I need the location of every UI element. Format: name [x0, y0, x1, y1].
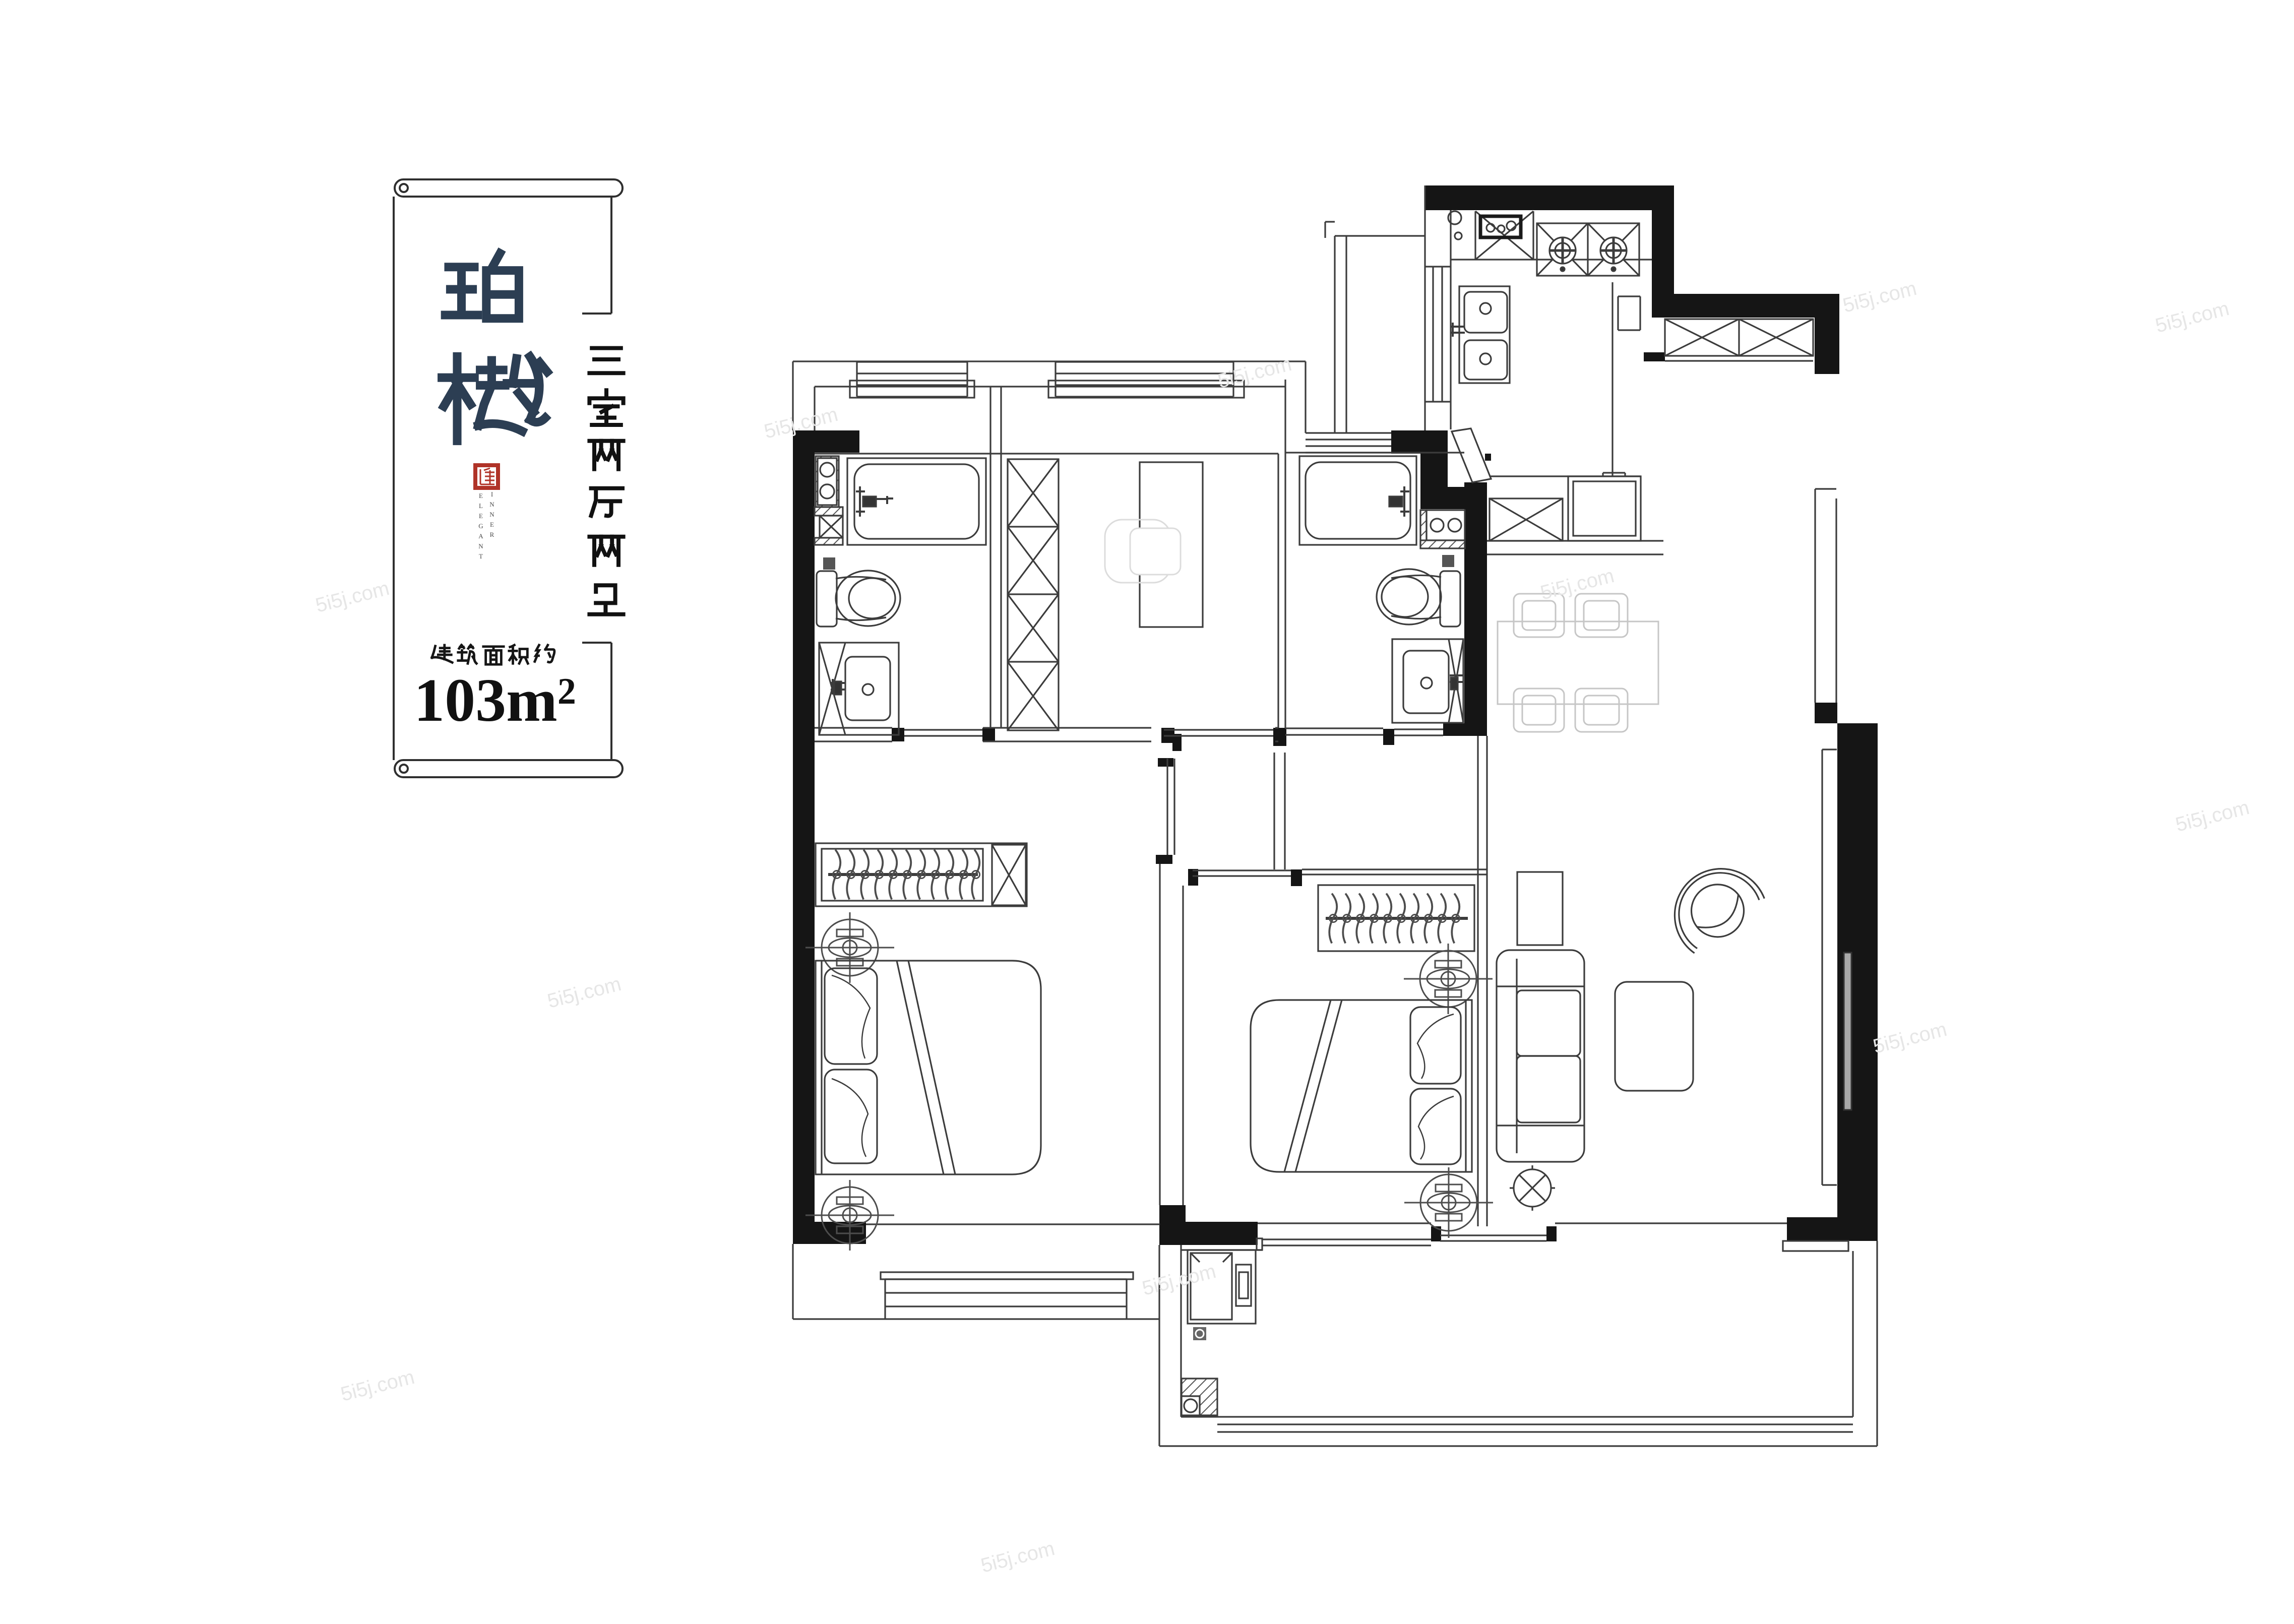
svg-text:G: G: [478, 522, 483, 530]
svg-text:E: E: [479, 492, 483, 499]
svg-text:103m2: 103m2: [414, 666, 576, 734]
svg-text:N: N: [478, 542, 483, 550]
svg-text:L: L: [479, 502, 483, 510]
svg-text:E: E: [479, 512, 483, 520]
svg-text:R: R: [490, 531, 494, 538]
svg-text:T: T: [479, 552, 483, 560]
svg-text:I: I: [491, 490, 493, 498]
svg-text:N: N: [489, 511, 494, 518]
svg-text:N: N: [489, 501, 494, 508]
svg-text:A: A: [478, 532, 483, 540]
svg-text:E: E: [490, 521, 494, 528]
